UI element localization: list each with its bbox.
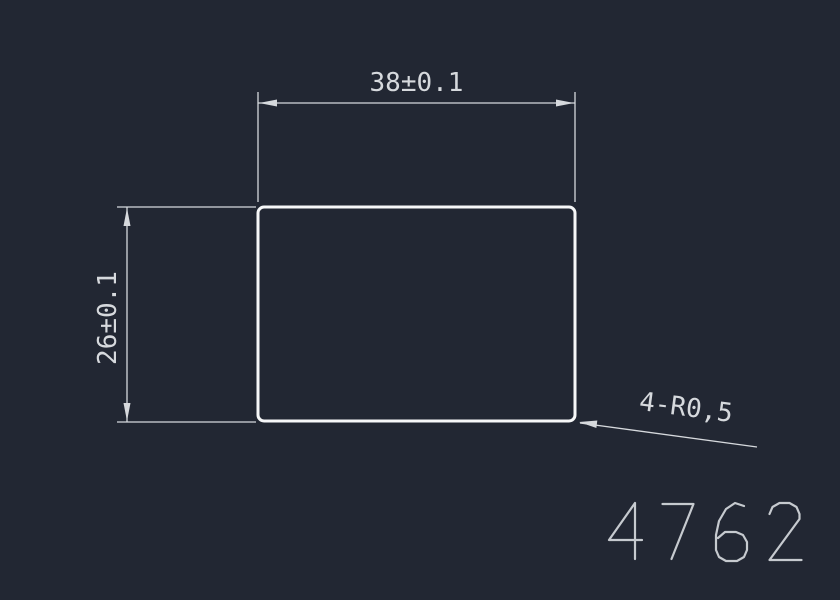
cad-canvas: 38±0.1 26±0.1 4-R0,5 xyxy=(0,0,840,600)
part-number-digit xyxy=(663,504,694,559)
width-arrow-right xyxy=(556,100,574,107)
part-number-digit xyxy=(609,503,642,559)
height-arrow-top xyxy=(124,208,131,226)
width-dimension xyxy=(258,92,575,202)
leader-arrow xyxy=(579,421,597,429)
part-number-glyphs xyxy=(609,503,802,561)
width-dimension-label: 38±0.1 xyxy=(258,68,575,98)
part-outline xyxy=(258,207,575,421)
height-arrow-bottom xyxy=(124,403,131,421)
part-number-digit xyxy=(770,503,802,560)
height-dimension-label: 26±0.1 xyxy=(93,271,123,365)
part-number-digit xyxy=(716,503,747,561)
height-dimension xyxy=(117,207,256,422)
width-arrow-left xyxy=(259,100,277,107)
